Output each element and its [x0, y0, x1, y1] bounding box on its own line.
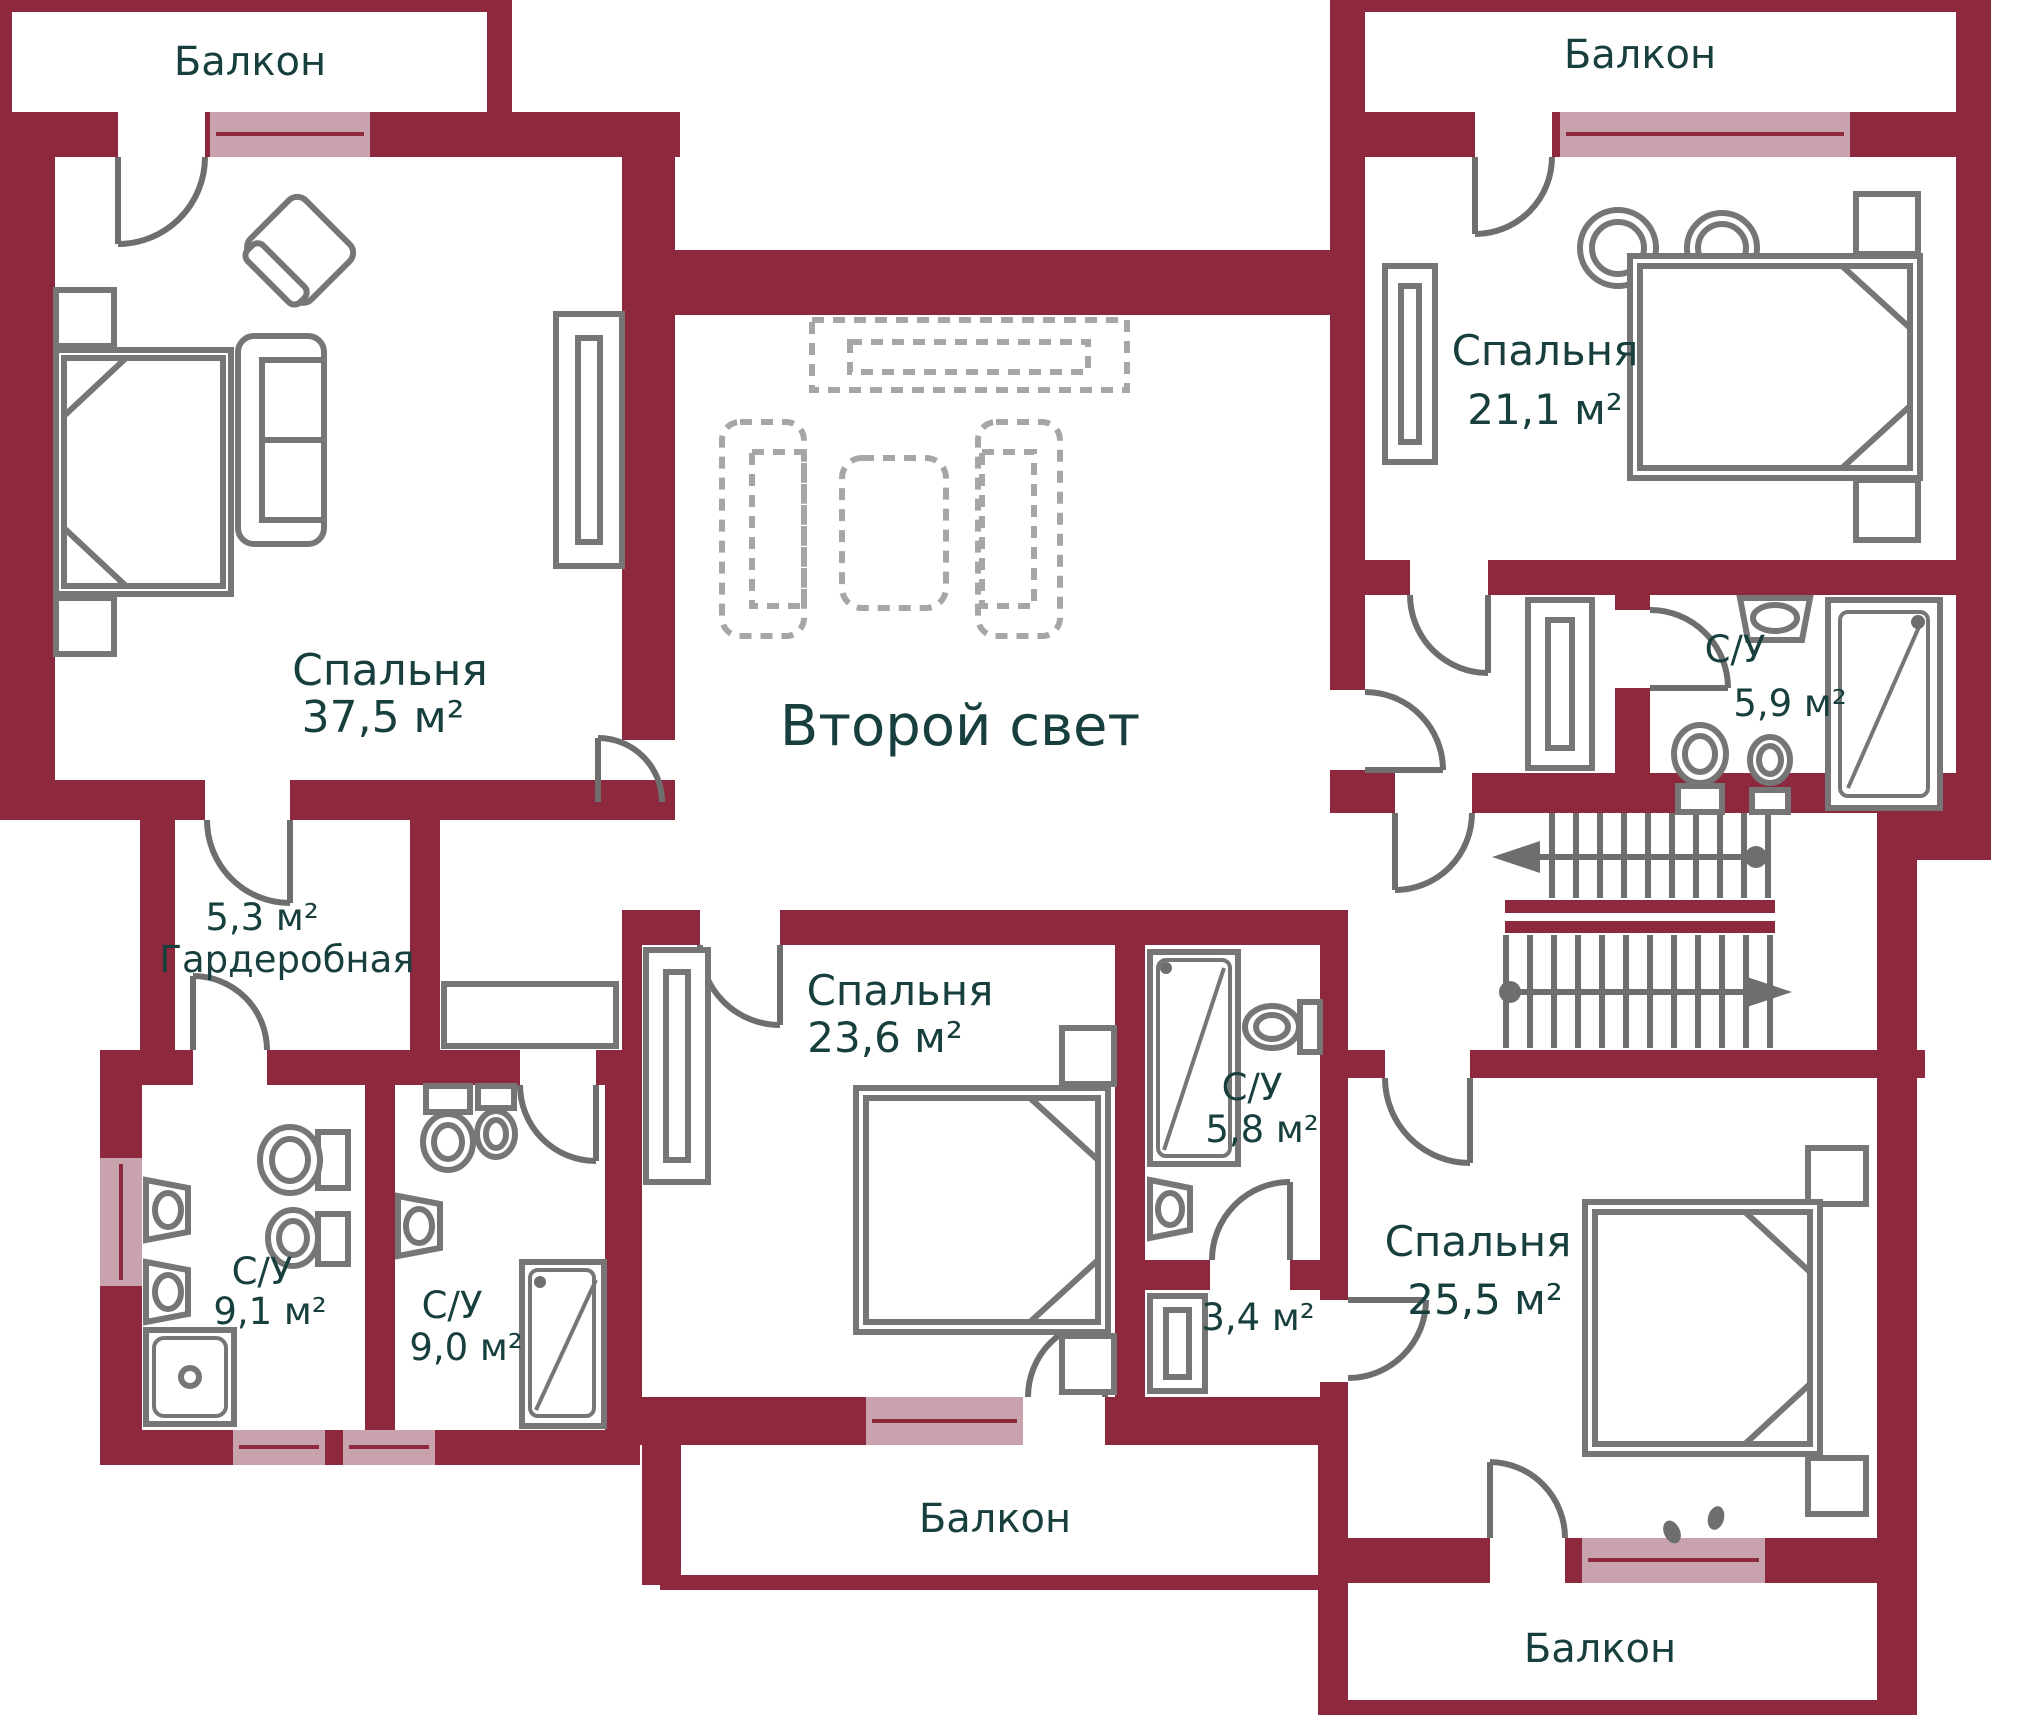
door-arc: [1410, 595, 1488, 673]
label-balcony-bottom-center: Балкон: [919, 1496, 1071, 1542]
door-arc: [118, 157, 205, 244]
area-bathroom-top-right: 5,9 м²: [1733, 682, 1846, 725]
sofa-seat-icon: [982, 452, 1034, 606]
wardrobe-icon: [1385, 266, 1435, 462]
wardrobe-icon: [646, 950, 708, 1182]
coffee-table-icon: [842, 458, 946, 608]
bed-icon: [56, 290, 231, 654]
armchair-icon: [238, 192, 358, 312]
door-arc: [1365, 692, 1443, 770]
sink-icon: [1150, 1180, 1190, 1238]
bed-icon: [1585, 1148, 1866, 1514]
area-bedroom-center: 23,6 м²: [807, 1013, 962, 1062]
area-bedroom-top-left: 37,5 м²: [302, 692, 465, 743]
toilet-icon: [423, 1086, 473, 1170]
label-bedroom-top-right: Спальня: [1452, 326, 1639, 375]
label-bathroom-left-1: С/У: [232, 1250, 293, 1293]
label-bathroom-top-right: С/У: [1705, 628, 1766, 671]
window: [343, 1430, 435, 1465]
window: [233, 1430, 325, 1465]
area-bathroom-center: 5,8 м²: [1205, 1108, 1318, 1151]
door-arc: [700, 945, 780, 1025]
stairs-up-arrow: [1492, 841, 1540, 873]
window: [210, 112, 370, 157]
bidet-icon: [1750, 737, 1790, 812]
door-arc: [1490, 1462, 1565, 1538]
slipper-icon: [1705, 1504, 1727, 1531]
door-arc: [1385, 1078, 1470, 1163]
shower-tray-icon: [146, 1330, 234, 1424]
window: [866, 1397, 1023, 1445]
bed-icon: [856, 1028, 1114, 1392]
cabinet-icon: [444, 984, 616, 1046]
label-bathroom-left-2: С/У: [422, 1284, 483, 1327]
area-bedroom-bottom-right: 25,5 м²: [1407, 1275, 1562, 1324]
area-bedroom-top-right: 21,1 м²: [1467, 385, 1622, 434]
label-balcony-top-right: Балкон: [1564, 32, 1716, 78]
area-closet: 3,4 м²: [1201, 1296, 1314, 1339]
area-bathroom-left-2: 9,0 м²: [409, 1326, 522, 1369]
door-arc: [193, 976, 267, 1050]
label-bedroom-center: Спальня: [807, 966, 994, 1015]
bidet-icon: [477, 1086, 515, 1157]
bed-icon: [1630, 194, 1920, 540]
sink-icon: [146, 1262, 188, 1322]
toilet-icon: [260, 1127, 348, 1193]
wardrobe-icon: [556, 314, 622, 566]
door-arc: [520, 1085, 596, 1161]
label-bedroom-bottom-right: Спальня: [1385, 1217, 1572, 1266]
shower-icon: [522, 1262, 604, 1426]
closet-furniture: [1150, 1296, 1205, 1391]
window: [1560, 112, 1850, 157]
floor-plan: Балкон Балкон Спальня 37,5 м² 5,3 м² Гар…: [0, 0, 2031, 1720]
label-bathroom-center: С/У: [1222, 1066, 1283, 1109]
window: [1582, 1538, 1765, 1583]
sofa-icon: [238, 336, 324, 544]
area-wardrobe: 5,3 м²: [205, 896, 318, 939]
label-balcony-top-left: Балкон: [174, 39, 326, 85]
floor-plan-canvas: Балкон Балкон Спальня 37,5 м² 5,3 м² Гар…: [0, 0, 2031, 1720]
door-arc: [1395, 813, 1472, 890]
label-bedroom-top-left: Спальня: [292, 645, 488, 696]
sofa-seat-icon: [752, 452, 804, 606]
door-arc: [207, 820, 290, 903]
sink-icon: [398, 1196, 440, 1256]
bathroom-left-2-fixtures: [398, 1086, 604, 1426]
label-balcony-bottom-right: Балкон: [1524, 1626, 1676, 1672]
toilet-icon: [1674, 725, 1726, 812]
door-arc: [1475, 157, 1552, 234]
area-bathroom-left-1: 9,1 м²: [213, 1290, 326, 1333]
toilet-icon: [1245, 1002, 1320, 1052]
lounge-furniture: [722, 320, 1127, 636]
hall-wardrobe-icon: [1528, 600, 1592, 768]
bedroom-top-left-furniture: [56, 192, 622, 654]
label-wardrobe: Гардеробная: [159, 938, 414, 981]
window: [100, 1158, 142, 1286]
door-arc: [1212, 1182, 1290, 1260]
tv-console-icon: [812, 320, 1127, 390]
bedroom-bottom-right-furniture: [1585, 1148, 1866, 1546]
label-lounge: Второй свет: [780, 694, 1140, 759]
sink-icon: [146, 1180, 188, 1240]
